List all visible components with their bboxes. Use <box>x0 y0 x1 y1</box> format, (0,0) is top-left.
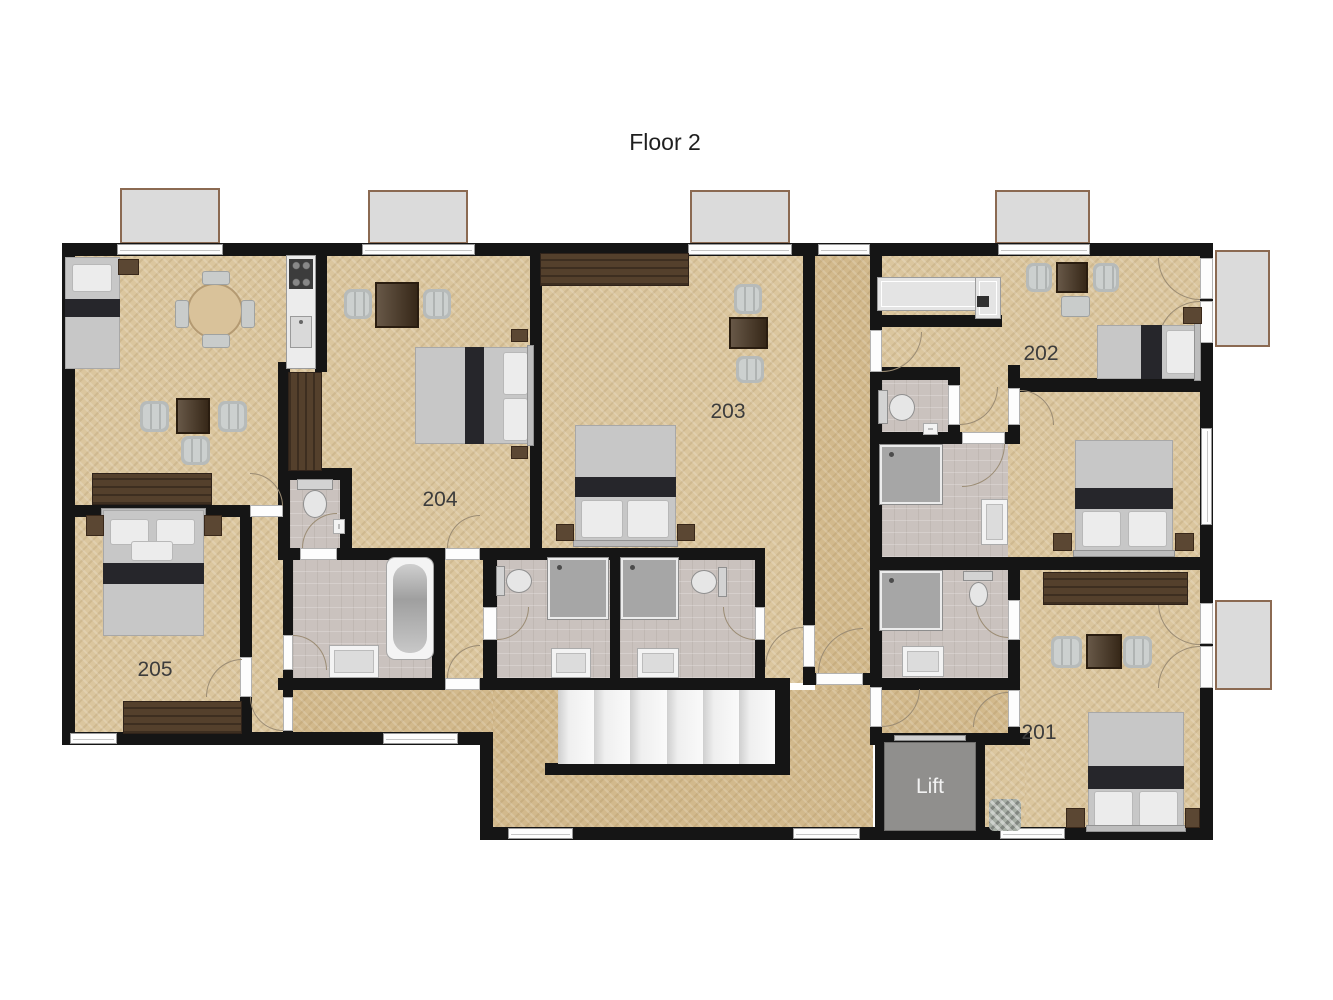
window <box>818 244 870 255</box>
side-table <box>375 282 419 328</box>
bed-pillow <box>1139 791 1178 827</box>
dining-table <box>1056 262 1088 293</box>
balcony <box>1215 600 1272 690</box>
lift-doors <box>894 735 966 741</box>
stove <box>289 259 313 289</box>
wardrobe <box>288 372 322 471</box>
toilet-bowl <box>691 570 717 594</box>
wall-segment <box>1008 425 1020 440</box>
window <box>117 244 223 255</box>
door-leaf <box>300 548 337 560</box>
door-leaf <box>1200 258 1213 299</box>
bed-pillow <box>1082 511 1121 547</box>
stair-step <box>739 690 775 764</box>
armchair <box>1123 636 1152 668</box>
stair-step <box>667 690 703 764</box>
floor-title: Floor 2 <box>590 126 740 158</box>
floorplan-canvas: Floor 2 <box>0 0 1333 1000</box>
bed-runner <box>1141 325 1162 379</box>
bed-runner <box>103 563 204 584</box>
side-table <box>729 317 768 349</box>
coffee-table <box>1086 634 1122 669</box>
bed-pillow <box>1094 791 1133 827</box>
room-label-202: 202 <box>1006 341 1076 367</box>
toilet-tank <box>963 571 993 581</box>
window <box>362 244 475 255</box>
staircase <box>558 690 775 764</box>
armchair <box>181 436 210 465</box>
bed-headboard <box>527 345 534 446</box>
armchair <box>734 284 762 314</box>
wall-segment <box>480 678 790 690</box>
nightstand <box>1066 808 1085 828</box>
wall-segment <box>1008 557 1020 600</box>
door-leaf <box>1008 600 1020 640</box>
door-leaf <box>755 607 765 640</box>
nightstand <box>118 259 139 275</box>
counter-appliance <box>977 296 989 307</box>
balcony <box>1215 250 1270 347</box>
armchair <box>218 401 247 432</box>
window <box>383 733 458 744</box>
bed-pillow <box>1166 330 1196 374</box>
balcony <box>120 188 220 244</box>
wall-segment <box>870 557 1213 570</box>
bed-pillow <box>627 500 669 538</box>
dining-table <box>187 283 243 339</box>
door-leaf <box>250 505 283 517</box>
door-leaf <box>283 635 293 670</box>
bed-runner <box>1088 766 1184 789</box>
bed-runner <box>575 477 676 497</box>
stair-step <box>594 690 630 764</box>
door-leaf <box>803 625 815 667</box>
armchair <box>423 289 451 319</box>
room-label-203: 203 <box>693 399 763 425</box>
hand-basin <box>333 519 345 534</box>
nightstand <box>204 515 222 536</box>
bed-pillow <box>72 264 112 292</box>
nightstand <box>1185 808 1200 828</box>
door-leaf <box>483 607 497 640</box>
bed-runner <box>465 347 484 444</box>
vanity-sink <box>902 646 944 677</box>
balcony <box>995 190 1090 244</box>
window <box>1201 428 1212 525</box>
wall-segment <box>240 505 252 657</box>
nightstand <box>511 446 528 459</box>
wall-segment <box>340 468 352 560</box>
wall-segment <box>870 432 962 444</box>
door-leaf <box>1008 388 1020 425</box>
nightstand <box>86 515 104 536</box>
door-leaf <box>962 432 1005 444</box>
window <box>998 244 1090 255</box>
shower-tray <box>621 558 678 619</box>
wardrobe <box>540 253 689 286</box>
bed-headboard <box>1194 323 1201 381</box>
bed-headboard <box>573 540 678 547</box>
wall-segment <box>803 255 815 625</box>
nightstand <box>677 524 695 541</box>
kitchen-sink <box>290 316 312 348</box>
chair <box>202 334 230 348</box>
shower-tray <box>548 558 608 619</box>
toilet-bowl <box>969 582 988 607</box>
wall-segment <box>278 678 445 690</box>
toilet-tank <box>297 479 333 490</box>
chair <box>202 271 230 285</box>
bed-pillow <box>503 398 528 441</box>
wall-segment <box>948 367 960 385</box>
wall-segment <box>1008 640 1020 690</box>
shower-tray <box>880 445 942 504</box>
wall-segment <box>278 548 300 560</box>
bed-pillow <box>1128 511 1167 547</box>
armchair <box>1093 263 1119 292</box>
toilet-tank <box>878 390 888 424</box>
floor-area-corridor-west <box>283 690 493 732</box>
room-label-201: 201 <box>1004 720 1074 746</box>
luggage-basket <box>989 799 1021 831</box>
coffee-table <box>176 398 210 434</box>
stair-step <box>630 690 666 764</box>
wall-segment <box>480 732 493 840</box>
wall-segment <box>315 243 327 372</box>
door-leaf <box>445 548 480 560</box>
hand-basin <box>923 423 938 435</box>
vanity-sink <box>551 648 591 678</box>
sideboard <box>123 701 242 734</box>
door-leaf <box>816 673 863 685</box>
vanity-sink <box>329 645 379 678</box>
vanity-sink <box>981 499 1008 545</box>
door-leaf <box>283 697 293 731</box>
bed-pillow <box>581 500 623 538</box>
toilet-bowl <box>889 394 915 421</box>
floor-area-corridor-vertical <box>815 256 870 690</box>
room-label-204: 204 <box>405 487 475 513</box>
nightstand <box>1175 533 1194 551</box>
wall-segment <box>610 548 620 690</box>
sideboard <box>1043 572 1188 605</box>
door-leaf <box>870 687 882 727</box>
window <box>793 828 860 839</box>
nightstand <box>1053 533 1072 551</box>
chair <box>175 300 189 328</box>
door-leaf <box>1200 646 1213 688</box>
vanity-sink <box>637 648 679 678</box>
toilet-bowl <box>303 490 327 518</box>
wall-segment <box>1008 378 1200 392</box>
bed-headboard <box>1073 550 1175 557</box>
shower-tray <box>880 571 942 630</box>
door-leaf <box>870 330 882 372</box>
window <box>688 244 792 255</box>
lift-label: Lift <box>884 742 976 831</box>
sideboard <box>92 473 212 505</box>
window <box>70 733 117 744</box>
bed-runner <box>1075 488 1173 509</box>
toilet-bowl <box>506 569 532 593</box>
chair <box>1061 296 1090 317</box>
armchair <box>1026 263 1052 292</box>
wall-segment <box>483 548 497 607</box>
nightstand <box>556 524 574 541</box>
door-leaf <box>948 385 960 425</box>
bed-pillow <box>503 352 528 395</box>
armchair <box>344 289 372 319</box>
armchair <box>140 401 169 432</box>
balcony <box>368 190 468 244</box>
armchair <box>736 356 764 383</box>
bed-pillow <box>131 541 173 561</box>
bed-headboard <box>1086 825 1186 832</box>
room-label-205: 205 <box>120 657 190 683</box>
door-leaf <box>445 678 480 690</box>
wall-segment <box>545 763 790 775</box>
balcony <box>690 190 790 244</box>
armchair <box>1051 636 1082 668</box>
toilet-tank <box>718 567 727 597</box>
stair-step <box>558 690 594 764</box>
toilet-tank <box>496 566 505 596</box>
window <box>508 828 573 839</box>
chair <box>241 300 255 328</box>
nightstand <box>511 329 528 342</box>
bed-runner <box>65 299 120 317</box>
door-leaf <box>1200 603 1213 644</box>
wall-segment <box>803 673 816 685</box>
wall-segment <box>283 557 293 635</box>
wall-segment <box>283 731 293 745</box>
stair-step <box>703 690 739 764</box>
wall-segment <box>1008 365 1020 388</box>
nightstand <box>1183 307 1202 324</box>
bathtub <box>386 557 434 660</box>
